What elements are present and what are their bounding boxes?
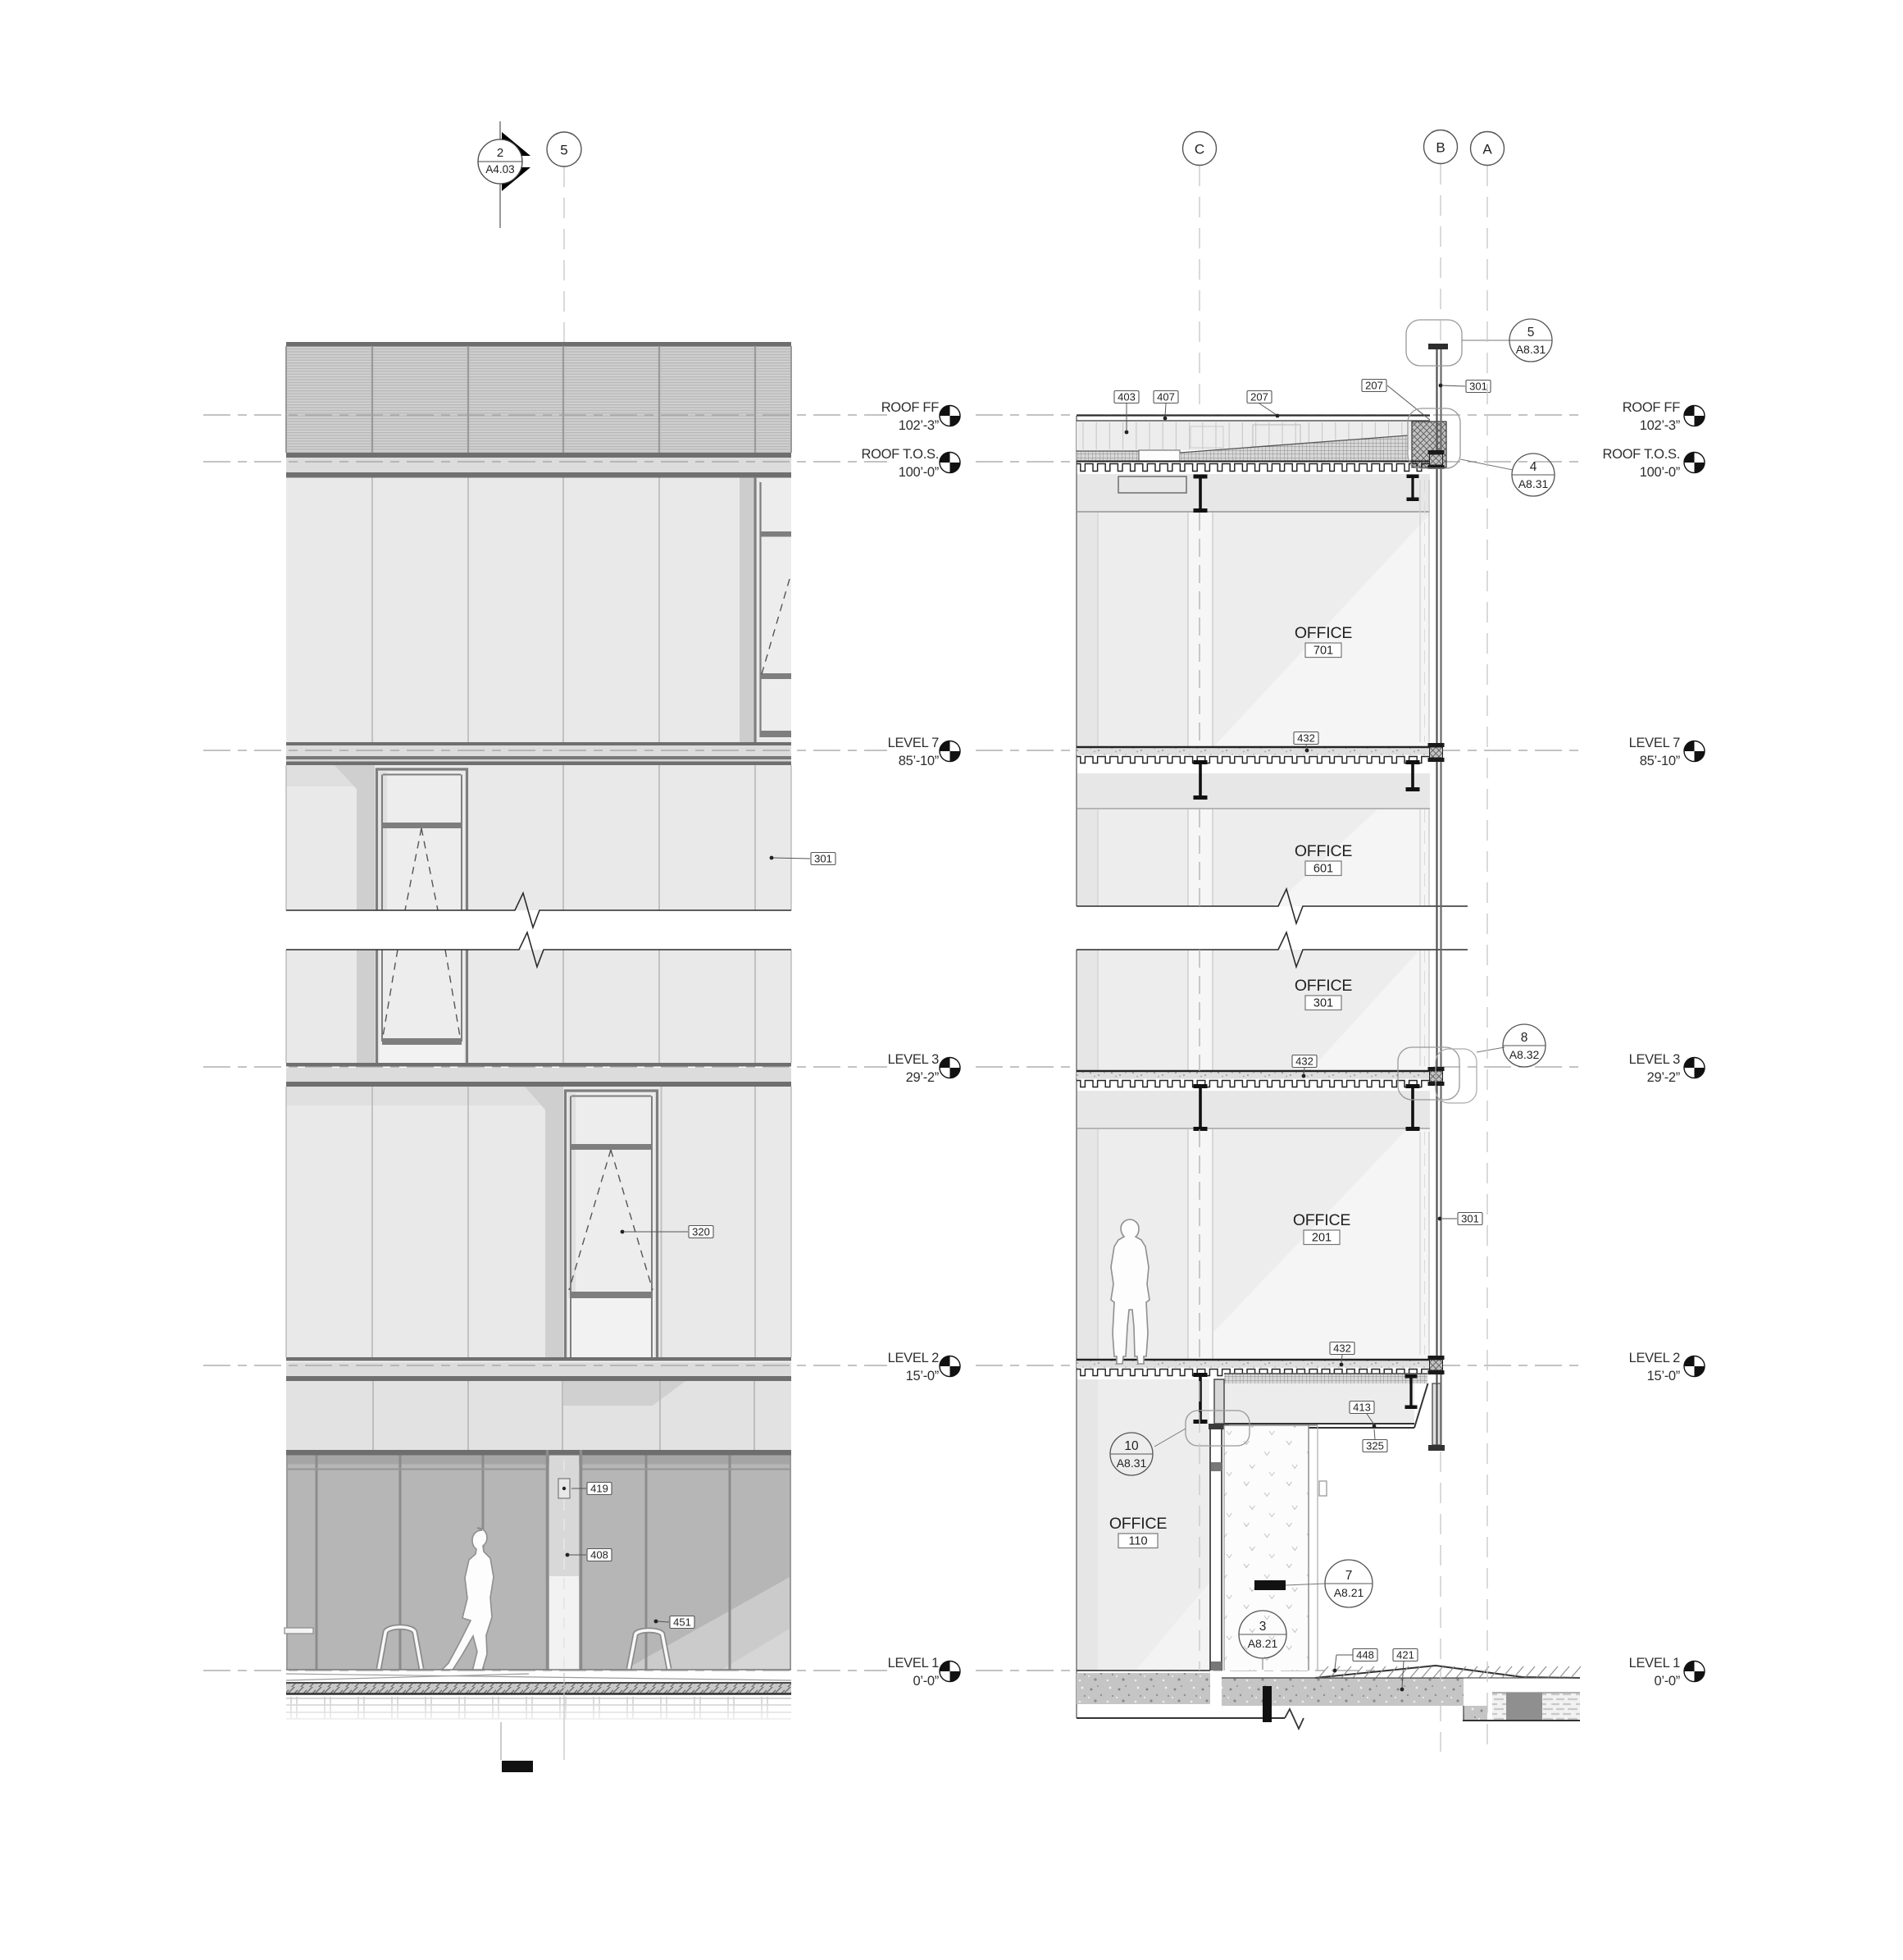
svg-text:LEVEL 1: LEVEL 1 (1629, 1656, 1681, 1671)
svg-text:207: 207 (1250, 391, 1268, 403)
svg-text:432: 432 (1297, 732, 1315, 745)
svg-text:5: 5 (1527, 326, 1535, 340)
svg-text:432: 432 (1295, 1055, 1313, 1068)
svg-text:419: 419 (590, 1483, 608, 1495)
svg-text:ROOF T.O.S.: ROOF T.O.S. (862, 447, 940, 462)
svg-text:100’-0”: 100’-0” (1640, 465, 1680, 480)
svg-text:A4.03: A4.03 (485, 163, 514, 175)
svg-text:4: 4 (1530, 460, 1537, 474)
svg-text:85’-10”: 85’-10” (899, 754, 939, 768)
svg-text:0’-0”: 0’-0” (1654, 1674, 1680, 1689)
svg-text:320: 320 (692, 1226, 710, 1238)
svg-text:B: B (1436, 140, 1445, 156)
svg-text:432: 432 (1333, 1342, 1351, 1355)
svg-text:403: 403 (1118, 391, 1136, 403)
svg-text:102’-3”: 102’-3” (899, 418, 939, 433)
svg-text:601: 601 (1313, 863, 1333, 876)
svg-text:407: 407 (1157, 391, 1175, 403)
svg-text:ROOF FF: ROOF FF (1623, 400, 1681, 415)
svg-text:ROOF T.O.S.: ROOF T.O.S. (1603, 447, 1681, 462)
svg-text:7: 7 (1345, 1569, 1353, 1583)
svg-text:C: C (1195, 142, 1204, 157)
svg-text:110: 110 (1128, 1535, 1147, 1548)
svg-text:5: 5 (560, 143, 567, 158)
svg-text:OFFICE: OFFICE (1293, 1211, 1350, 1229)
svg-text:451: 451 (673, 1616, 691, 1629)
svg-text:448: 448 (1356, 1649, 1374, 1661)
svg-text:8: 8 (1521, 1031, 1528, 1045)
svg-text:A8.31: A8.31 (1516, 343, 1546, 356)
svg-text:100’-0”: 100’-0” (899, 465, 939, 480)
svg-text:102’-3”: 102’-3” (1640, 418, 1680, 433)
svg-text:A8.32: A8.32 (1509, 1048, 1540, 1061)
svg-text:29’-2”: 29’-2” (1647, 1070, 1680, 1085)
svg-text:301: 301 (1313, 997, 1333, 1010)
svg-text:OFFICE: OFFICE (1295, 842, 1352, 860)
svg-text:207: 207 (1365, 380, 1383, 392)
svg-text:A8.31: A8.31 (1117, 1456, 1147, 1470)
svg-text:2: 2 (497, 146, 503, 160)
svg-text:301: 301 (1461, 1213, 1479, 1225)
svg-text:ROOF FF: ROOF FF (881, 400, 940, 415)
svg-text:OFFICE: OFFICE (1295, 624, 1352, 642)
svg-text:413: 413 (1353, 1402, 1371, 1414)
svg-text:A: A (1482, 142, 1492, 157)
svg-text:LEVEL 7: LEVEL 7 (1629, 736, 1681, 750)
svg-text:29’-2”: 29’-2” (906, 1070, 939, 1085)
svg-text:201: 201 (1312, 1232, 1332, 1245)
svg-text:0’-0”: 0’-0” (913, 1674, 939, 1689)
svg-text:701: 701 (1313, 645, 1333, 658)
svg-text:301: 301 (1469, 381, 1487, 393)
svg-text:325: 325 (1366, 1440, 1384, 1452)
svg-text:LEVEL 2: LEVEL 2 (1629, 1351, 1681, 1365)
svg-text:15’-0”: 15’-0” (1647, 1369, 1680, 1383)
svg-text:A8.21: A8.21 (1334, 1586, 1364, 1599)
svg-text:421: 421 (1396, 1649, 1414, 1661)
svg-text:10: 10 (1124, 1439, 1139, 1453)
svg-text:15’-0”: 15’-0” (906, 1369, 939, 1383)
svg-text:LEVEL 1: LEVEL 1 (888, 1656, 940, 1671)
svg-text:A8.31: A8.31 (1518, 477, 1549, 490)
svg-text:OFFICE: OFFICE (1295, 977, 1352, 995)
svg-text:LEVEL 3: LEVEL 3 (1629, 1052, 1681, 1067)
svg-text:OFFICE: OFFICE (1109, 1515, 1167, 1533)
svg-text:LEVEL 3: LEVEL 3 (888, 1052, 940, 1067)
svg-text:301: 301 (814, 853, 832, 865)
svg-text:3: 3 (1259, 1620, 1267, 1634)
svg-text:A8.21: A8.21 (1248, 1637, 1278, 1650)
svg-text:408: 408 (590, 1549, 608, 1561)
svg-text:LEVEL 7: LEVEL 7 (888, 736, 940, 750)
svg-text:LEVEL 2: LEVEL 2 (888, 1351, 940, 1365)
svg-text:85’-10”: 85’-10” (1640, 754, 1680, 768)
